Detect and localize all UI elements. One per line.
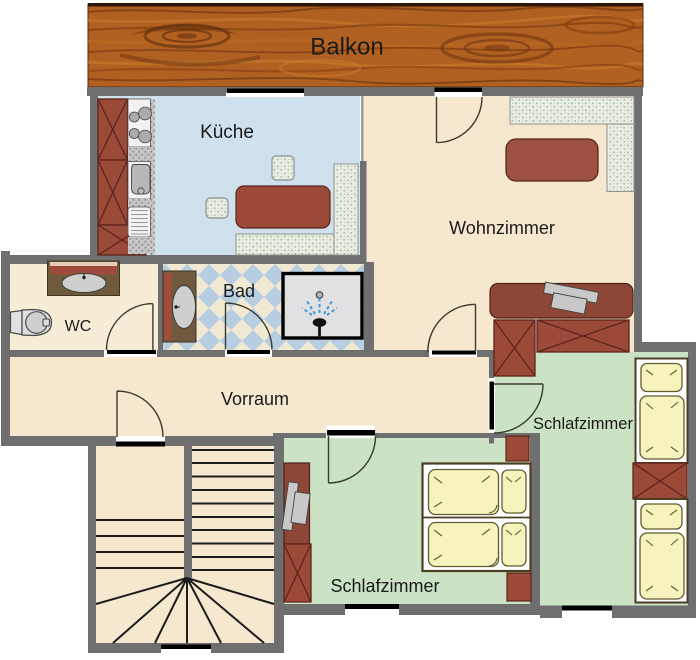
svg-text:Vorraum: Vorraum (221, 389, 289, 409)
svg-text:Balkon: Balkon (310, 34, 383, 61)
svg-text:Küche: Küche (200, 122, 254, 143)
svg-text:Wohnzimmer: Wohnzimmer (449, 218, 555, 238)
svg-text:Schlafzimmer: Schlafzimmer (533, 415, 633, 433)
svg-text:Schlafzimmer: Schlafzimmer (330, 576, 439, 596)
svg-text:WC: WC (65, 318, 92, 335)
svg-text:Bad: Bad (223, 281, 255, 301)
